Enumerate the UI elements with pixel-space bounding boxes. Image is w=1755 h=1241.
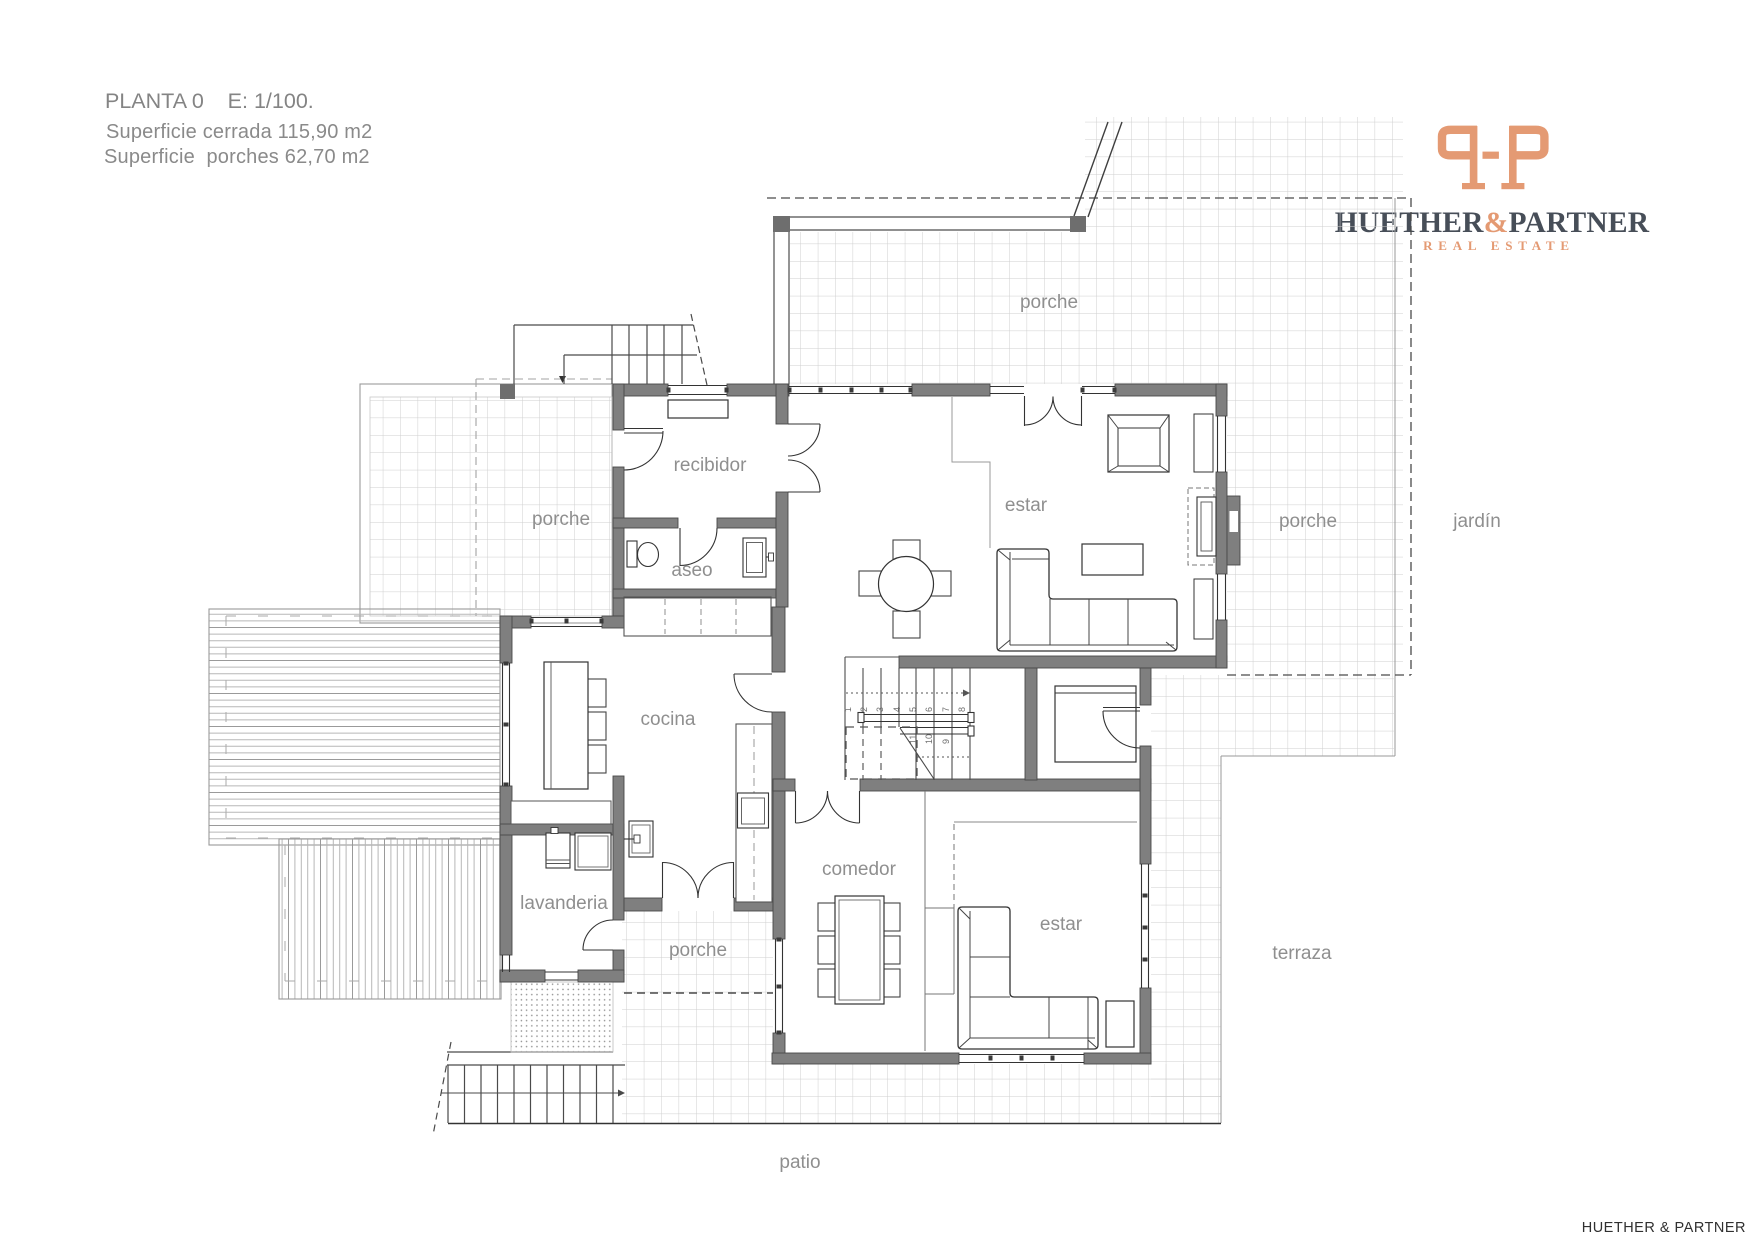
- svg-text:2: 2: [859, 707, 869, 712]
- svg-text:5: 5: [908, 707, 918, 712]
- svg-text:3: 3: [875, 707, 885, 712]
- svg-text:PLANTA 0 E: 1/100.: PLANTA 0 E: 1/100.: [105, 89, 314, 113]
- svg-text:7: 7: [941, 707, 951, 712]
- svg-text:HUETHER & PARTNER: HUETHER & PARTNER: [1582, 1220, 1746, 1236]
- svg-text:4: 4: [892, 707, 902, 712]
- svg-text:porche: porche: [1020, 292, 1078, 313]
- svg-text:porche: porche: [1279, 511, 1337, 532]
- svg-text:porche: porche: [669, 940, 727, 961]
- svg-text:recibidor: recibidor: [674, 455, 748, 476]
- svg-text:cocina: cocina: [641, 709, 696, 730]
- svg-text:terraza: terraza: [1272, 943, 1332, 964]
- svg-text:patio: patio: [779, 1152, 820, 1173]
- svg-text:porche: porche: [532, 509, 590, 530]
- svg-text:9: 9: [941, 739, 951, 744]
- svg-text:10: 10: [924, 734, 934, 744]
- svg-text:6: 6: [924, 707, 934, 712]
- svg-text:comedor: comedor: [822, 859, 897, 880]
- svg-text:8: 8: [957, 707, 967, 712]
- svg-text:estar: estar: [1005, 495, 1048, 516]
- svg-text:Superficie porches 62,70 m2: Superficie porches 62,70 m2: [104, 146, 370, 168]
- svg-text:estar: estar: [1040, 914, 1083, 935]
- svg-text:1: 1: [843, 707, 853, 712]
- svg-text:lavanderia: lavanderia: [520, 893, 608, 914]
- svg-text:aseo: aseo: [671, 560, 712, 581]
- svg-text:Superficie cerrada 115,90 m2: Superficie cerrada 115,90 m2: [106, 121, 373, 143]
- svg-text:REAL ESTATE: REAL ESTATE: [1423, 238, 1575, 253]
- svg-text:jardín: jardín: [1452, 511, 1501, 532]
